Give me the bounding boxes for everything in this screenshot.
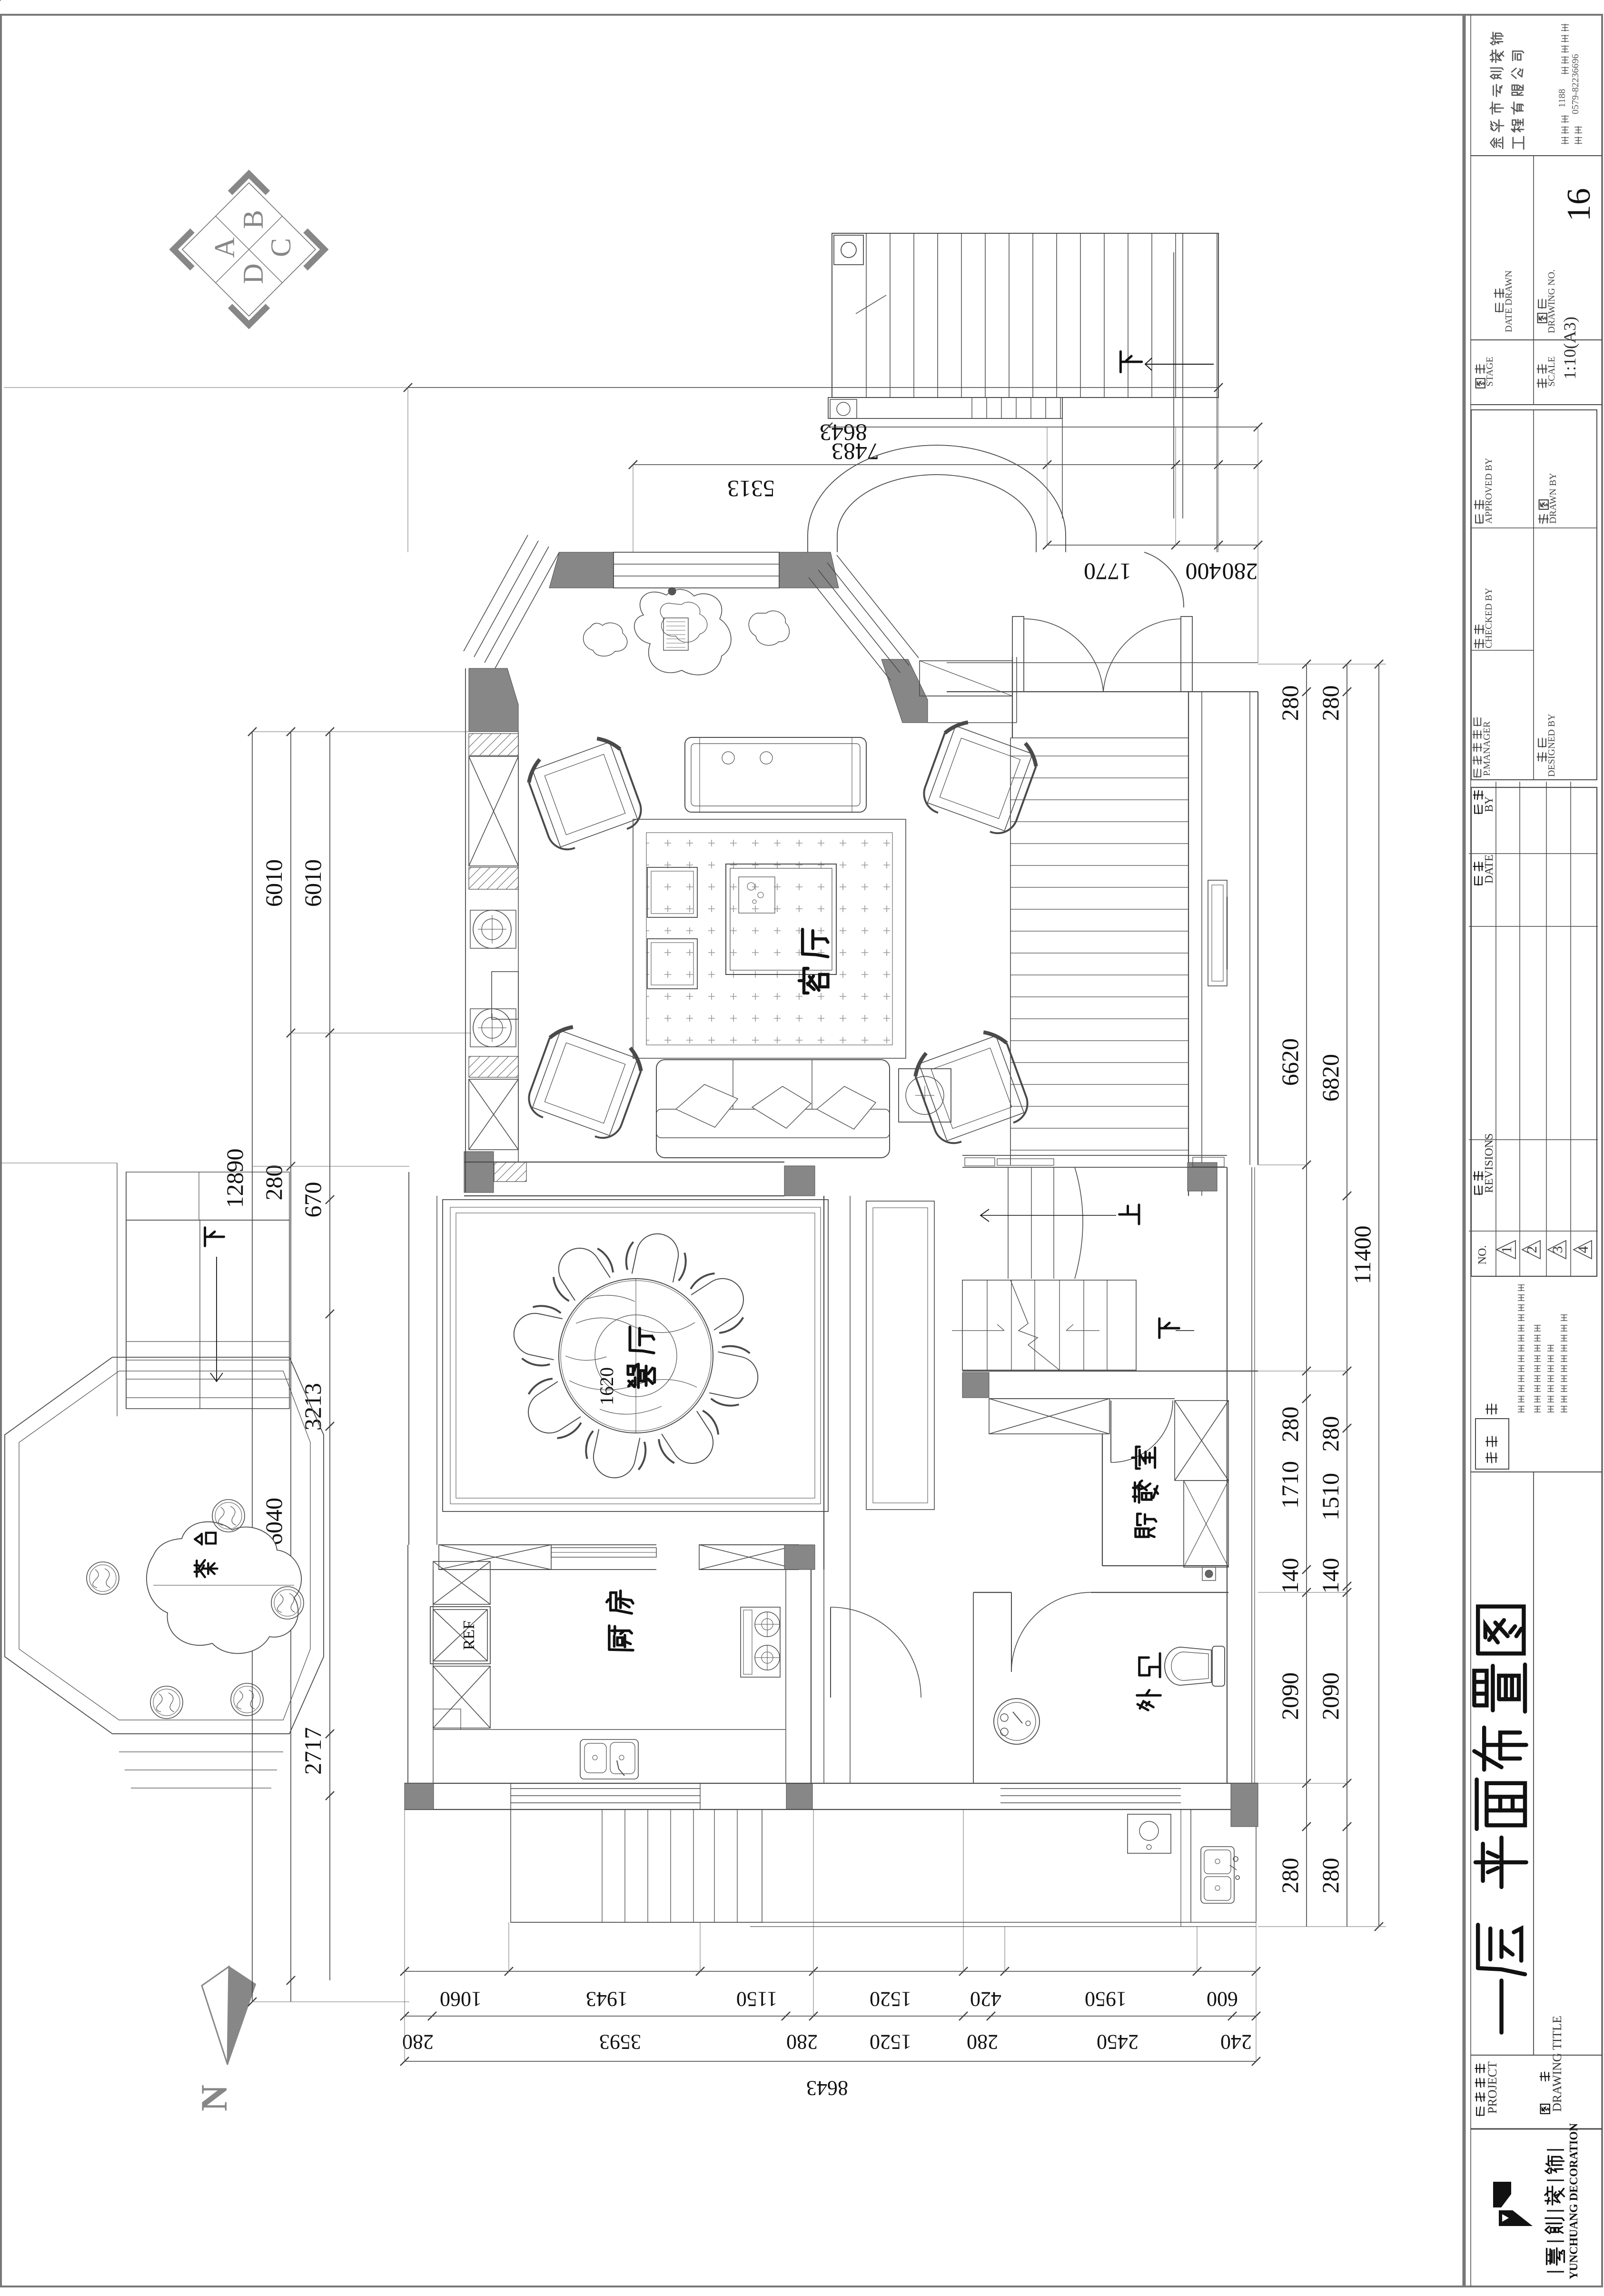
svg-text:6620: 6620 bbox=[1277, 1038, 1303, 1086]
svg-text:8643: 8643 bbox=[806, 2077, 848, 2100]
svg-text:600: 600 bbox=[1207, 1988, 1238, 2011]
svg-text:1620: 1620 bbox=[596, 1367, 617, 1405]
svg-text:1710: 1710 bbox=[1277, 1461, 1303, 1509]
svg-text:280: 280 bbox=[260, 1165, 287, 1201]
svg-text:CHECKED BY: CHECKED BY bbox=[1484, 588, 1494, 648]
svg-text:280: 280 bbox=[1222, 558, 1258, 585]
svg-text:SCALE: SCALE bbox=[1546, 357, 1557, 387]
svg-text:280: 280 bbox=[1277, 1407, 1303, 1442]
svg-text:STAGE: STAGE bbox=[1485, 357, 1495, 387]
svg-text:1770: 1770 bbox=[1084, 558, 1131, 585]
svg-text:B: B bbox=[238, 210, 269, 229]
svg-text:5313: 5313 bbox=[727, 476, 775, 502]
svg-text:2450: 2450 bbox=[1097, 2030, 1139, 2054]
svg-text:4: 4 bbox=[1575, 1246, 1591, 1253]
svg-text:400: 400 bbox=[1186, 558, 1221, 585]
svg-text:2: 2 bbox=[1524, 1246, 1540, 1253]
svg-text:11400: 11400 bbox=[1349, 1225, 1376, 1284]
svg-text:1510: 1510 bbox=[1317, 1473, 1344, 1521]
svg-text:3593: 3593 bbox=[599, 2030, 641, 2054]
svg-text:REF: REF bbox=[460, 1620, 478, 1650]
svg-text:280: 280 bbox=[786, 2030, 818, 2054]
svg-text:1943: 1943 bbox=[586, 1988, 628, 2011]
svg-text:1:10(A3): 1:10(A3) bbox=[1560, 317, 1579, 379]
svg-text:C: C bbox=[265, 238, 297, 257]
svg-text:280: 280 bbox=[1277, 1858, 1303, 1894]
svg-text:APPROVED BY: APPROVED BY bbox=[1484, 458, 1494, 524]
svg-text:420: 420 bbox=[970, 1988, 1001, 2011]
svg-text:16: 16 bbox=[1561, 188, 1597, 221]
svg-text:N: N bbox=[193, 2085, 235, 2111]
svg-text:240: 240 bbox=[1220, 2030, 1252, 2054]
svg-text:12890: 12890 bbox=[221, 1149, 248, 1208]
svg-text:A: A bbox=[209, 237, 240, 258]
svg-text:280: 280 bbox=[967, 2030, 998, 2054]
svg-text:2090: 2090 bbox=[1277, 1672, 1303, 1720]
svg-text:3: 3 bbox=[1550, 1246, 1565, 1253]
svg-text:1520: 1520 bbox=[870, 2030, 911, 2054]
svg-text:670: 670 bbox=[299, 1182, 326, 1218]
svg-text:1: 1 bbox=[1499, 1246, 1515, 1253]
svg-text:1150: 1150 bbox=[736, 1988, 777, 2011]
svg-text:DESIGNED BY: DESIGNED BY bbox=[1546, 714, 1557, 777]
svg-text:P.MANAGER: P.MANAGER bbox=[1482, 721, 1492, 776]
svg-text:140: 140 bbox=[1317, 1558, 1344, 1594]
svg-text:280: 280 bbox=[1317, 1858, 1344, 1894]
svg-text:280: 280 bbox=[1277, 686, 1303, 721]
svg-text:1060: 1060 bbox=[440, 1988, 482, 2011]
svg-text:0579-82236696: 0579-82236696 bbox=[1570, 54, 1581, 114]
svg-text:REVISIONS: REVISIONS bbox=[1483, 1133, 1495, 1193]
svg-text:BY: BY bbox=[1483, 796, 1495, 812]
svg-text:280: 280 bbox=[402, 2030, 434, 2054]
svg-text:DATE DRAWN: DATE DRAWN bbox=[1504, 270, 1514, 332]
svg-text:DATE: DATE bbox=[1483, 855, 1495, 884]
svg-text:2717: 2717 bbox=[299, 1727, 326, 1775]
svg-text:D: D bbox=[238, 263, 269, 284]
svg-text:280: 280 bbox=[1317, 686, 1344, 721]
svg-text:280: 280 bbox=[1317, 1416, 1344, 1452]
svg-text:PROJECT: PROJECT bbox=[1485, 2061, 1499, 2114]
svg-text:1950: 1950 bbox=[1085, 1988, 1127, 2011]
svg-text:140: 140 bbox=[1277, 1558, 1303, 1594]
svg-text:DRAWING TITLE: DRAWING TITLE bbox=[1550, 2016, 1564, 2112]
svg-text:NO.: NO. bbox=[1476, 1245, 1489, 1265]
svg-text:DRAWN BY: DRAWN BY bbox=[1548, 473, 1558, 524]
svg-text:2090: 2090 bbox=[1317, 1672, 1344, 1720]
svg-text:1188: 1188 bbox=[1557, 89, 1567, 108]
svg-text:6010: 6010 bbox=[260, 859, 287, 907]
svg-text:6820: 6820 bbox=[1317, 1054, 1344, 1102]
svg-text:YUNCHUANG DECORATION: YUNCHUANG DECORATION bbox=[1568, 2123, 1580, 2279]
svg-text:6010: 6010 bbox=[299, 859, 326, 907]
svg-text:7483: 7483 bbox=[832, 438, 879, 465]
svg-text:DRAWING NO.: DRAWING NO. bbox=[1546, 269, 1557, 333]
svg-text:1520: 1520 bbox=[870, 1988, 911, 2011]
